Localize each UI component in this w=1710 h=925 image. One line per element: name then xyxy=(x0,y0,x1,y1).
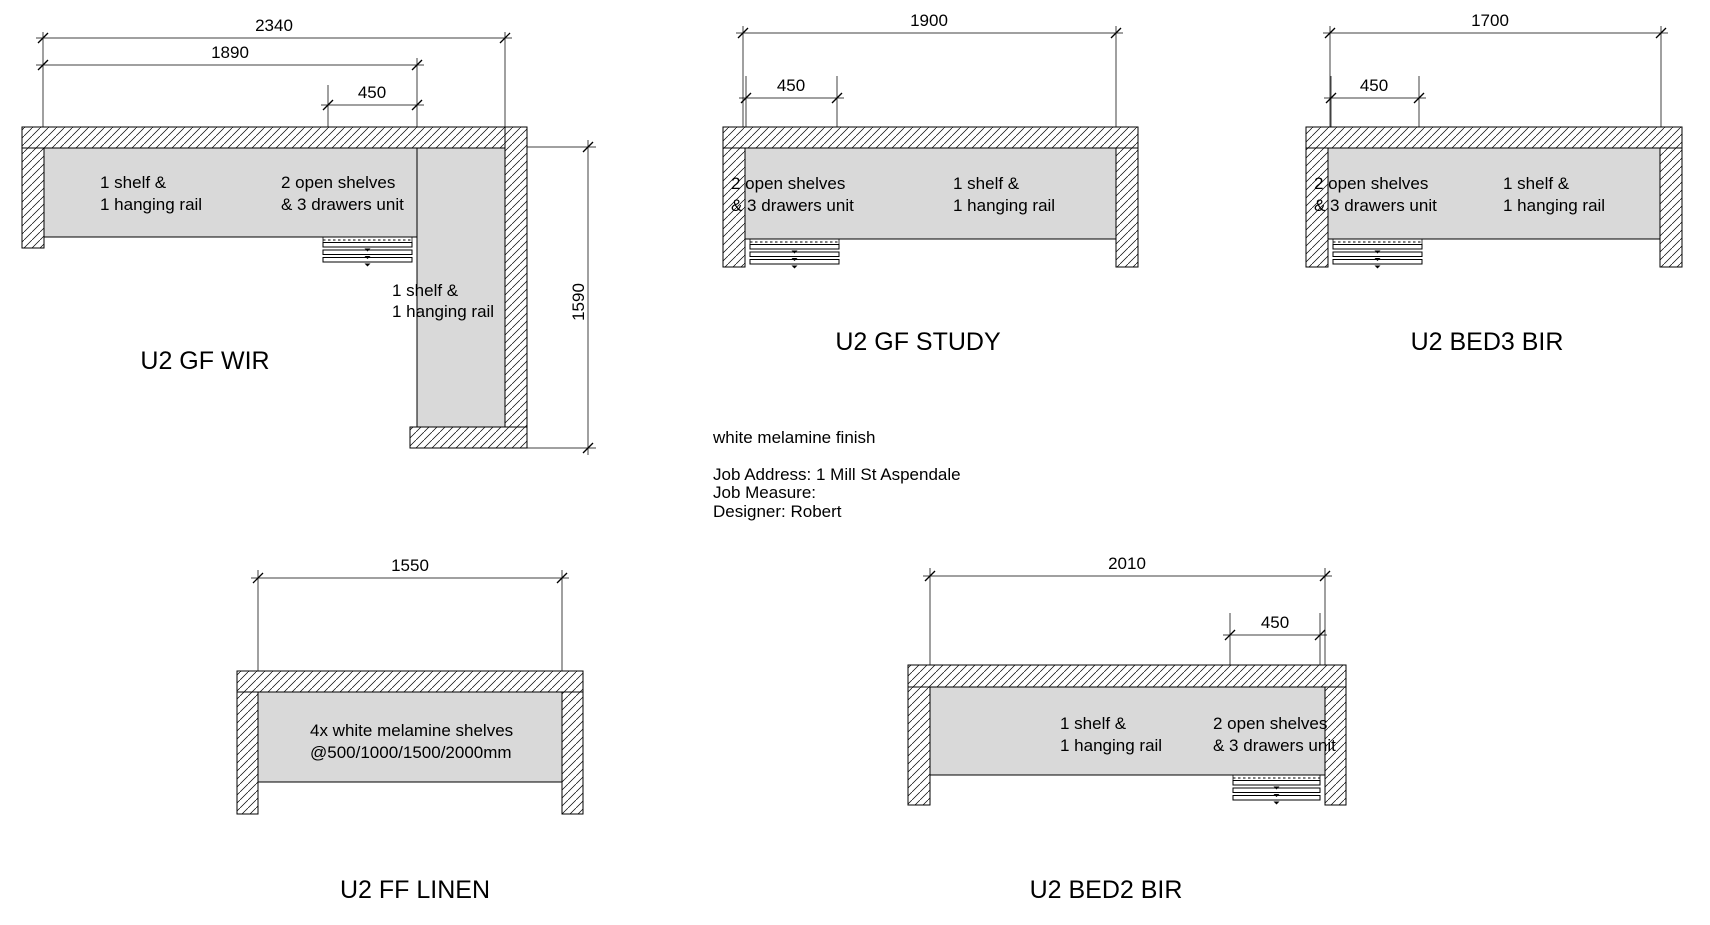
unit-u2-bed2-bir: 2010 450 1 shelf & 1 hanging rail 2 open… xyxy=(908,554,1346,904)
drawing-sheet: 2340 1890 450 1590 1 shelf & 1 hanging r… xyxy=(0,0,1710,925)
section-label: & 3 drawers unit xyxy=(281,195,404,214)
section-label: 1 hanging rail xyxy=(392,302,494,321)
wall-hatch-right xyxy=(505,127,527,448)
drawer-unit-icon xyxy=(323,237,412,267)
wall-hatch-right xyxy=(562,692,583,814)
section-label: 2 open shelves xyxy=(281,173,395,192)
unit-title: U2 GF WIR xyxy=(140,347,269,375)
section-label: & 3 drawers unit xyxy=(731,196,854,215)
wall-hatch-top xyxy=(723,127,1138,148)
cabinet-interior xyxy=(1328,148,1660,239)
unit-u2-ff-linen: 1550 4x white melamine shelves @500/1000… xyxy=(237,556,583,904)
dim-return-length: 1590 xyxy=(569,283,588,321)
section-label: 1 shelf & xyxy=(1503,174,1570,193)
unit-u2-gf-wir: 2340 1890 450 1590 1 shelf & 1 hanging r… xyxy=(22,16,596,455)
wall-hatch-right xyxy=(1116,148,1138,267)
wall-hatch-top xyxy=(22,127,527,148)
wall-hatch-top xyxy=(1306,127,1682,148)
dim-drawer-width: 450 xyxy=(1261,613,1289,632)
section-label: 2 open shelves xyxy=(1314,174,1428,193)
wall-hatch-top xyxy=(237,671,583,692)
dim-drawer-width: 450 xyxy=(1360,76,1388,95)
wall-hatch-right xyxy=(1660,148,1682,267)
cabinetry-plan-drawing: 2340 1890 450 1590 1 shelf & 1 hanging r… xyxy=(0,0,1710,925)
section-label: & 3 drawers unit xyxy=(1213,736,1336,755)
section-label: 1 hanging rail xyxy=(1060,736,1162,755)
unit-title: U2 BED3 BIR xyxy=(1411,328,1564,356)
dim-drawer-width: 450 xyxy=(777,76,805,95)
section-label: 1 hanging rail xyxy=(1503,196,1605,215)
unit-u2-bed3-bir: 1700 450 2 open shelves & 3 drawers unit… xyxy=(1306,11,1682,356)
unit-title: U2 BED2 BIR xyxy=(1030,876,1183,904)
section-label: 1 shelf & xyxy=(392,281,459,300)
wall-hatch-left xyxy=(908,687,930,805)
dim-drawer-width: 450 xyxy=(358,83,386,102)
section-label: 1 shelf & xyxy=(1060,714,1127,733)
job-address: Job Address: 1 Mill St Aspendale xyxy=(713,465,961,484)
section-label: 2 open shelves xyxy=(731,174,845,193)
section-label: 4x white melamine shelves xyxy=(310,721,513,740)
section-label: 2 open shelves xyxy=(1213,714,1327,733)
unit-title: U2 FF LINEN xyxy=(340,876,490,904)
section-label: @500/1000/1500/2000mm xyxy=(310,743,512,762)
wall-hatch-top xyxy=(908,665,1346,687)
dim-overall-width: 2340 xyxy=(255,16,293,35)
dim-overall-width: 1900 xyxy=(910,11,948,30)
finish-note: white melamine finish xyxy=(712,428,876,447)
unit-title: U2 GF STUDY xyxy=(835,328,1001,356)
cabinet-interior xyxy=(745,148,1116,239)
drawer-unit-icon xyxy=(750,239,839,269)
dim-overall-width: 1700 xyxy=(1471,11,1509,30)
section-label: 1 hanging rail xyxy=(953,196,1055,215)
dim-overall-width: 2010 xyxy=(1108,554,1146,573)
drawer-unit-icon xyxy=(1233,775,1320,805)
wall-hatch-bottom xyxy=(410,427,527,448)
unit-u2-gf-study: 1900 450 2 open shelves & 3 drawers unit… xyxy=(723,11,1138,356)
job-measure: Job Measure: xyxy=(713,483,816,502)
section-label: 1 shelf & xyxy=(953,174,1020,193)
section-label: 1 shelf & xyxy=(100,173,167,192)
dim-left-section: 1890 xyxy=(211,43,249,62)
dim-overall-width: 1550 xyxy=(391,556,429,575)
cabinet-interior xyxy=(44,148,417,237)
designer: Designer: Robert xyxy=(713,502,842,521)
section-label: 1 hanging rail xyxy=(100,195,202,214)
drawer-unit-icon xyxy=(1333,239,1422,269)
notes-block: white melamine finish Job Address: 1 Mil… xyxy=(712,428,961,521)
wall-hatch-left xyxy=(237,692,258,814)
section-label: & 3 drawers unit xyxy=(1314,196,1437,215)
wall-hatch-left xyxy=(22,148,44,248)
